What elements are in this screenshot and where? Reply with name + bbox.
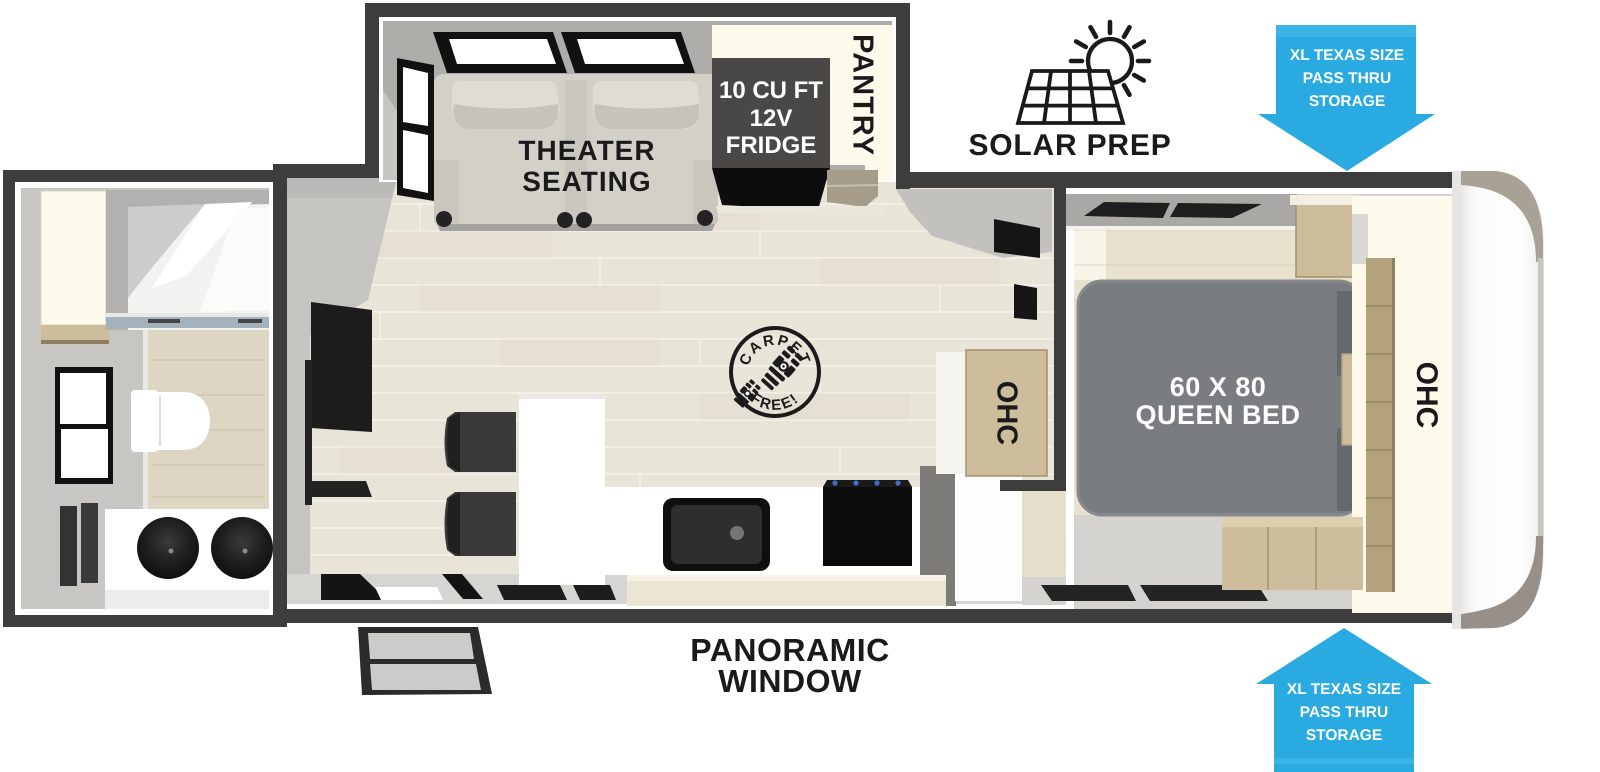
svg-text:XL TEXAS SIZE: XL TEXAS SIZE bbox=[1290, 47, 1404, 64]
svg-text:QUEEN BED: QUEEN BED bbox=[1135, 400, 1300, 430]
svg-text:PANTRY: PANTRY bbox=[846, 34, 878, 156]
svg-text:XL TEXAS SIZE: XL TEXAS SIZE bbox=[1287, 681, 1401, 698]
svg-text:60 X 80: 60 X 80 bbox=[1170, 372, 1267, 402]
svg-text:SOLAR PREP: SOLAR PREP bbox=[968, 129, 1171, 162]
svg-text:FRIDGE: FRIDGE bbox=[726, 132, 817, 159]
svg-text:12V: 12V bbox=[750, 105, 793, 132]
svg-text:SEATING: SEATING bbox=[522, 166, 651, 197]
svg-text:10 CU FT: 10 CU FT bbox=[719, 77, 823, 104]
svg-text:WINDOW: WINDOW bbox=[718, 663, 862, 699]
svg-text:OHC: OHC bbox=[990, 381, 1022, 446]
svg-text:THEATER: THEATER bbox=[518, 135, 655, 166]
svg-text:OHC: OHC bbox=[1410, 362, 1443, 429]
svg-text:STORAGE: STORAGE bbox=[1306, 727, 1382, 744]
svg-text:STORAGE: STORAGE bbox=[1309, 93, 1385, 110]
svg-text:PASS THRU: PASS THRU bbox=[1300, 704, 1388, 721]
svg-text:PASS THRU: PASS THRU bbox=[1303, 70, 1391, 87]
